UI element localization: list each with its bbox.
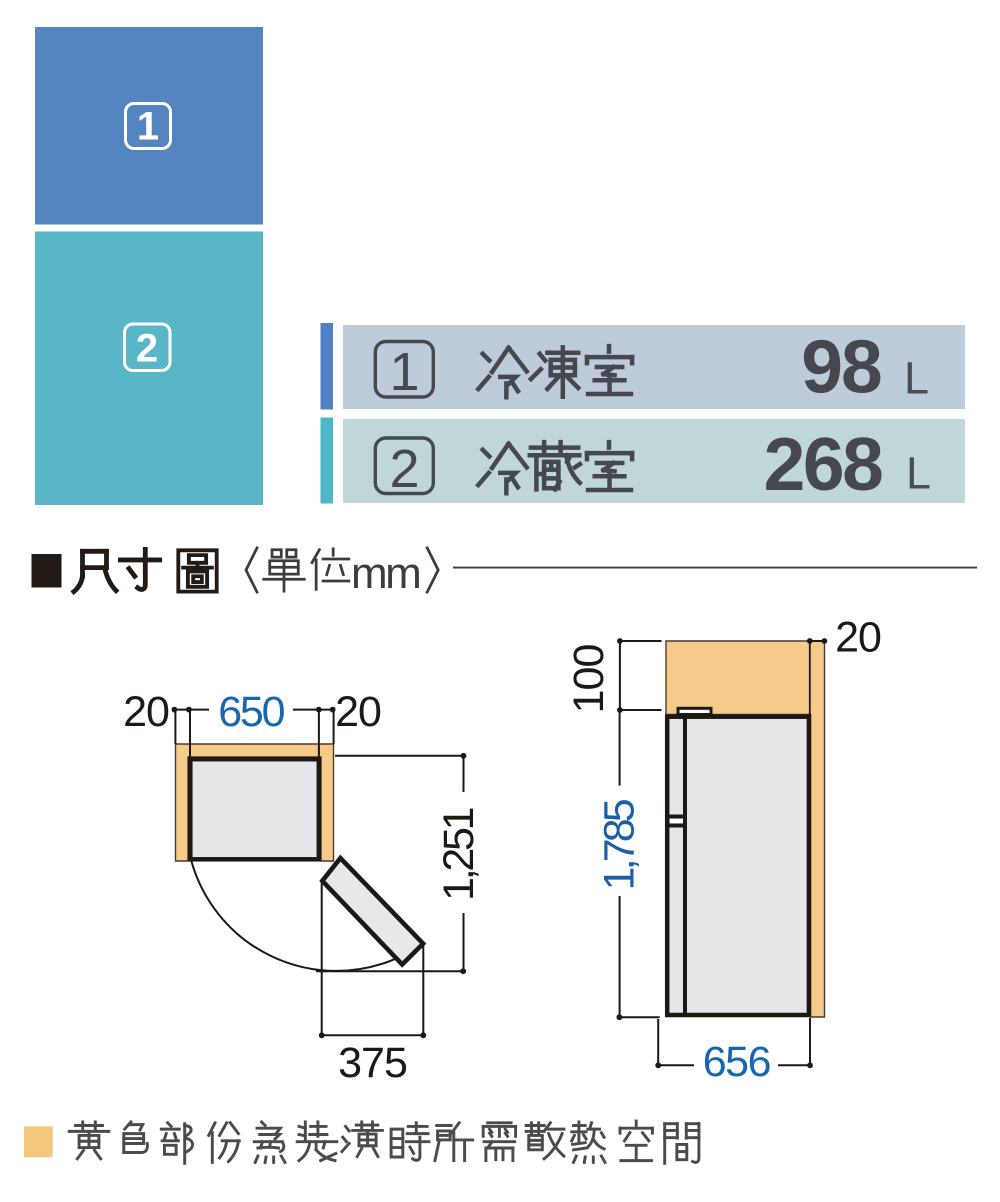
svg-text:656: 656 (703, 1038, 771, 1086)
svg-text:20: 20 (835, 614, 881, 662)
svg-text:1,251: 1,251 (435, 808, 483, 900)
svg-text:mm: mm (351, 549, 419, 598)
svg-text:268: 268 (764, 422, 882, 506)
svg-text:650: 650 (218, 688, 284, 736)
svg-text:375: 375 (338, 1039, 407, 1087)
svg-text:L: L (904, 352, 929, 403)
svg-text:98: 98 (801, 325, 881, 409)
svg-text:2: 2 (389, 439, 419, 499)
svg-text:1,785: 1,785 (596, 799, 644, 890)
svg-text:100: 100 (565, 645, 613, 714)
svg-text:1: 1 (137, 105, 159, 149)
svg-text:1: 1 (389, 342, 419, 402)
svg-text:2: 2 (136, 327, 158, 371)
svg-text:L: L (906, 448, 931, 499)
svg-text:20: 20 (335, 688, 381, 736)
svg-text:20: 20 (123, 688, 169, 736)
